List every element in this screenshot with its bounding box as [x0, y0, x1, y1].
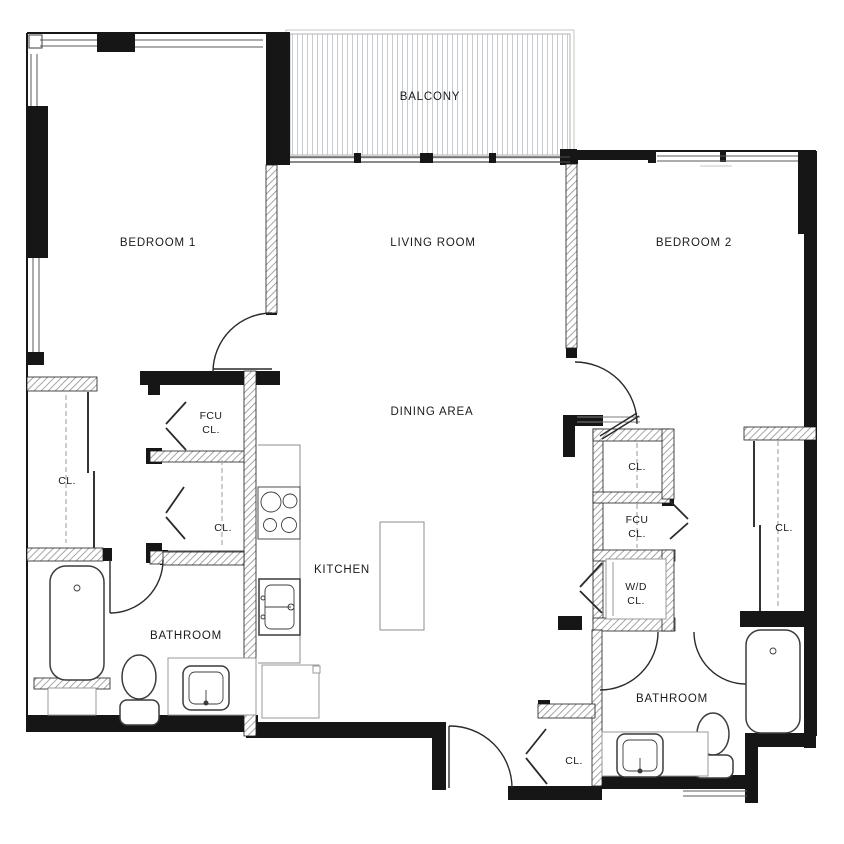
- fcu-left-label-2: CL.: [202, 424, 220, 436]
- sliding-door-closet-bedroom2: [754, 441, 760, 611]
- dishwasher: [262, 665, 320, 718]
- floor-plan-page: BALCONY BEDROOM 1 LIVING ROOM BEDROOM 2 …: [0, 0, 844, 844]
- floor-plan: BALCONY BEDROOM 1 LIVING ROOM BEDROOM 2 …: [0, 0, 844, 844]
- kitchen-label: KITCHEN: [314, 564, 370, 576]
- bedroom1-label: BEDROOM 1: [120, 237, 196, 249]
- wd-closet-label-1: W/D: [625, 581, 647, 593]
- bedroom2-closet-label: CL.: [775, 522, 793, 534]
- balcony-column: [266, 33, 290, 165]
- fcu-right-label-2: CL.: [628, 528, 646, 540]
- window-bedroom1-top: [40, 40, 97, 46]
- fcu-right-label-1: FCU: [626, 514, 649, 526]
- window-bedroom2-top: [657, 156, 798, 161]
- wd-closet-label-2: CL.: [627, 595, 645, 607]
- door-bedroom2: [575, 362, 639, 439]
- bathtub-2: [746, 630, 800, 733]
- bifold-fcu-right: [670, 501, 688, 539]
- bedroom2-label: BEDROOM 2: [656, 237, 732, 249]
- hall-closet-label: CL.: [214, 522, 232, 534]
- bath1-shelf: [48, 688, 96, 715]
- door-bedroom1: [213, 313, 272, 372]
- sliding-door-closet-bedroom1: [88, 392, 94, 548]
- bathroom2-label: BATHROOM: [636, 693, 708, 705]
- closet-right-top-label: CL.: [628, 461, 646, 473]
- window-bathroom2: [683, 791, 747, 796]
- bifold-entry-closet: [526, 729, 547, 784]
- toilet-1: [120, 655, 159, 725]
- door-entry: [449, 726, 512, 788]
- door-bathroom1: [110, 560, 163, 613]
- living-room-label: LIVING ROOM: [390, 237, 475, 249]
- door-bathroom2-left: [600, 632, 658, 690]
- dining-area-label: DINING AREA: [391, 406, 474, 418]
- bifold-fcu-left: [166, 402, 186, 450]
- stove: [258, 487, 300, 539]
- bathroom1-label: BATHROOM: [150, 630, 222, 642]
- bifold-closet-left: [166, 487, 185, 539]
- left-column: [27, 106, 48, 258]
- vanity-sink-2: [602, 732, 708, 777]
- balcony-label: BALCONY: [400, 91, 461, 103]
- window-bedroom1-left: [31, 54, 37, 106]
- door-bathroom2-right: [694, 632, 746, 684]
- kitchen-island: [380, 522, 424, 630]
- fcu-left-label-1: FCU: [200, 410, 223, 422]
- kitchen-sink: [259, 579, 300, 635]
- vanity-sink-1: [168, 658, 256, 715]
- bathtub-1: [50, 566, 104, 680]
- bedroom1-closet-label: CL.: [58, 475, 76, 487]
- entry-closet-label: CL.: [565, 755, 583, 767]
